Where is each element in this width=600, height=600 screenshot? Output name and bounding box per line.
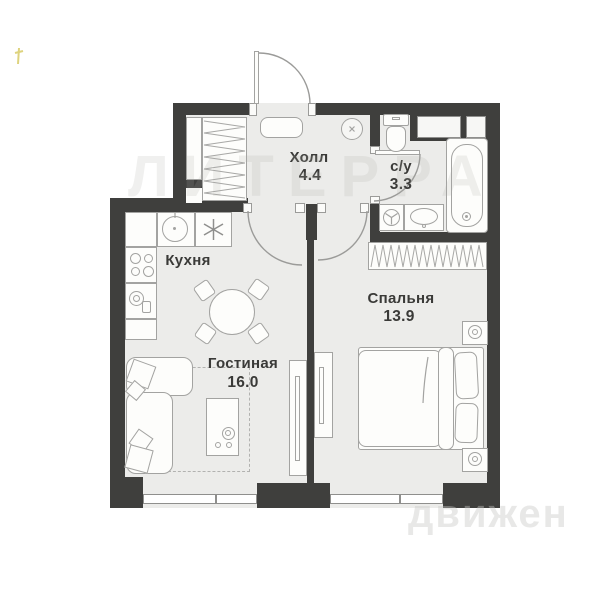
burner xyxy=(144,254,153,263)
appliance-detail xyxy=(142,301,151,313)
door-jamb xyxy=(317,203,326,213)
room-label-living: Гостиная xyxy=(208,355,278,372)
window xyxy=(143,494,257,504)
dining-table xyxy=(209,289,255,335)
toilet-bowl xyxy=(386,126,406,152)
room-area-bedroom: 13.9 xyxy=(383,308,414,326)
room-area-bathroom: 3.3 xyxy=(390,176,412,194)
room-area-hall: 4.4 xyxy=(299,167,321,185)
wall-partition xyxy=(307,205,314,483)
room-label-hall: Холл xyxy=(290,149,329,166)
wall xyxy=(310,103,372,115)
shelf-unit-living-inner xyxy=(295,376,300,461)
vent-shaft xyxy=(417,116,461,138)
entry-bench xyxy=(260,117,303,138)
door-jamb xyxy=(295,203,305,213)
sink-drain xyxy=(422,224,426,228)
entrance-door-arc xyxy=(259,53,310,104)
wall-bottom-right xyxy=(443,483,487,508)
bathroom-sink-basin xyxy=(410,208,438,225)
toilet-tank xyxy=(383,114,409,126)
dishwasher-cabinet xyxy=(195,212,232,247)
stand-circle-inner xyxy=(225,430,231,436)
nightstand-lamp-inner xyxy=(472,329,478,335)
compass-mark xyxy=(18,48,19,64)
shelf-unit-bedroom-inner xyxy=(319,367,324,424)
vent-shaft xyxy=(466,116,486,138)
kitchen-counter xyxy=(125,212,157,247)
burner xyxy=(143,266,154,277)
compass-mark xyxy=(15,51,23,53)
wall-closet-stub xyxy=(186,180,202,188)
window-mullion xyxy=(399,494,401,504)
nightstand-lamp-inner xyxy=(472,456,478,462)
bed-blanket xyxy=(358,350,442,447)
burner xyxy=(130,253,141,264)
floor-plan: Холл 4.4 с/у 3.3 Кухня Гостиная 16.0 Спа… xyxy=(0,0,600,600)
burner xyxy=(131,267,140,276)
appliance-circle-inner xyxy=(133,295,140,302)
toilet-button xyxy=(392,117,400,120)
door-jamb xyxy=(360,203,369,213)
kitchen-counter-end xyxy=(125,319,157,340)
bed-pillow xyxy=(454,403,478,444)
wall-partition-stub xyxy=(306,204,317,240)
wall-left xyxy=(110,198,125,508)
floor-plan-page: { "rooms": { "hall": {"name": "Холл", "a… xyxy=(0,0,600,600)
ceiling-light-icon xyxy=(341,118,363,140)
hall-wardrobe xyxy=(202,117,247,201)
wall-right xyxy=(487,103,500,508)
door-jamb xyxy=(370,196,380,204)
bathtub-drain-dot xyxy=(465,215,468,218)
room-area-living: 16.0 xyxy=(227,374,258,392)
bed-fold-bar xyxy=(438,347,454,450)
stand-dot xyxy=(226,442,232,448)
stand-dot xyxy=(215,442,221,448)
wall xyxy=(173,103,186,212)
door-jamb xyxy=(308,103,316,116)
room-label-bathroom: с/у xyxy=(390,158,412,175)
room-label-kitchen: Кухня xyxy=(165,252,210,269)
closet-column xyxy=(186,117,202,180)
tv-stand xyxy=(206,398,239,456)
kitchen-sink-dot xyxy=(173,227,176,230)
wall xyxy=(173,103,253,115)
wall-corner-bl xyxy=(110,477,143,508)
room-label-bedroom: Спальня xyxy=(368,290,435,307)
window xyxy=(330,494,443,504)
wall-bottom-mid xyxy=(257,483,330,508)
window-mullion xyxy=(215,494,217,504)
door-jamb xyxy=(243,203,252,213)
entrance-door-leaf xyxy=(254,51,259,104)
washing-machine-drum xyxy=(383,209,400,226)
bed-pillow xyxy=(454,351,479,399)
bedroom-wardrobe xyxy=(368,242,487,270)
wall-bath-bottom xyxy=(370,232,487,242)
closet-gap xyxy=(186,188,202,203)
door-jamb xyxy=(249,103,257,116)
cooktop xyxy=(125,247,157,283)
